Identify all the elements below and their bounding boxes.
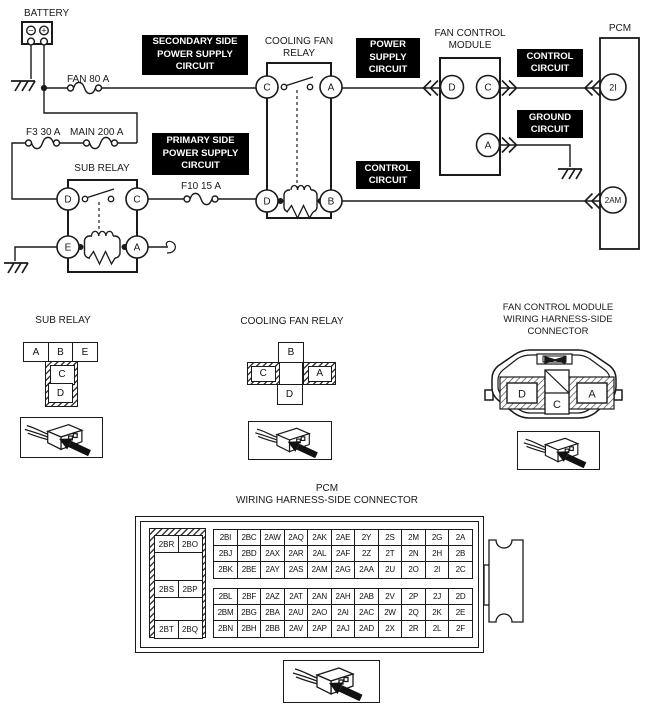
pcm-pin-cell: 2G (425, 529, 450, 547)
pcm-pin-cell: 2BB (260, 620, 285, 638)
cfr-connector-center (277, 362, 303, 386)
pcm-pin-cell: 2A (448, 529, 473, 547)
sub-relay-terminal-d: D (64, 195, 71, 206)
pcm-pin-grid-bottom: 2BL 2BF 2AZ 2AT 2AN 2AH 2AB 2V 2P 2J 2D … (213, 588, 473, 638)
sub-relay-connector-top-row: A B E (23, 342, 98, 362)
pcm-title: PCM (609, 23, 631, 34)
cooling-fan-relay-title: COOLING FAN RELAY (249, 36, 349, 60)
pcm-pin-cell: 2AP (307, 620, 332, 638)
pcm-pin-row: 2BI 2BC 2AW 2AQ 2AK 2AE 2Y 2S 2M 2G 2A (213, 529, 473, 547)
pcm-pin-cell: 2BD (237, 545, 262, 563)
fcm-connector-title: FAN CONTROL MODULE WIRING HARNESS-SIDE C… (478, 302, 638, 338)
pcm-pin-cell: 2AX (260, 545, 285, 563)
pcm-pin-cell: 2BN (213, 620, 238, 638)
pcm-pin-cell: 2J (425, 588, 450, 606)
pcm-side-pair: 2BS 2BP (154, 580, 203, 599)
pcm-pin-cell: 2AN (307, 588, 332, 606)
sub-relay-connector-body: C D (45, 361, 78, 407)
connector-photo-icon (518, 432, 598, 468)
pcm-pin-cell: 2C (448, 561, 473, 579)
pcm-pin-cell: 2AW (260, 529, 285, 547)
connector-photo-icon (284, 661, 378, 701)
sub-relay-pin-e: E (72, 342, 98, 362)
pcm-pin-cell: 2BM (213, 604, 238, 622)
pcm-pin-cell: 2T (378, 545, 403, 563)
pcm-box (600, 38, 639, 249)
pcm-pin-cell: 2H (425, 545, 450, 563)
connector-photo-icon (249, 422, 330, 458)
pcm-pin-cell: 2W (378, 604, 403, 622)
pcm-pin-cell: 2L (425, 620, 450, 638)
fcm-connector-photo (517, 431, 600, 470)
cfr-connector-left-body: C (247, 362, 280, 386)
pcm-pin-cell: 2AQ (284, 529, 309, 547)
pcm-pin-cell: 2AJ (331, 620, 356, 638)
fcm-connector-pin-c: C (553, 399, 561, 411)
pcm-pin-cell: 2BP (178, 580, 203, 599)
pcm-pin-row: 2BK 2BE 2AY 2AS 2AM 2AG 2AA 2U 2O 2I 2C (213, 561, 473, 579)
pcm-pin-row: 2BL 2BF 2AZ 2AT 2AN 2AH 2AB 2V 2P 2J 2D (213, 588, 473, 606)
pcm-pin-cell: 2N (401, 545, 426, 563)
pcm-pin-cell: 2AC (354, 604, 379, 622)
pcm-pin-cell: 2AY (260, 561, 285, 579)
pcm-pin-cell: 2AH (331, 588, 356, 606)
fcm-terminal-c: C (484, 83, 491, 94)
pcm-terminal-2am: 2AM (605, 196, 622, 205)
fcm-connector-diagram: D C A (483, 344, 627, 430)
pcm-connector-photo (283, 660, 380, 703)
pcm-key-blank (154, 552, 203, 581)
cfr-connector-title: COOLING FAN RELAY (217, 316, 367, 328)
control-circuit-label-bottom: CONTROL CIRCUIT (356, 161, 420, 189)
pcm-connector-key-tab (483, 517, 528, 653)
fcm-connector-pin-a: A (588, 389, 596, 401)
pcm-pin-cell: 2K (425, 604, 450, 622)
pcm-pin-cell: 2BA (260, 604, 285, 622)
pcm-pin-cell: 2R (401, 620, 426, 638)
pcm-pin-cell: 2AE (331, 529, 356, 547)
cfr-pin-c: C (251, 366, 276, 382)
sub-relay-pin-a: A (23, 342, 49, 362)
cfr-terminal-b: B (328, 197, 335, 208)
pcm-pin-cell: 2AO (307, 604, 332, 622)
pcm-pin-cell: 2AR (284, 545, 309, 563)
pcm-pin-cell: 2BT (154, 620, 179, 639)
pcm-pin-cell: 2M (401, 529, 426, 547)
pcm-pin-cell: 2BG (237, 604, 262, 622)
sub-relay-connector-photo (20, 417, 103, 458)
pcm-pin-cell: 2Y (354, 529, 379, 547)
fcm-connector-pin-d: D (518, 389, 526, 401)
pcm-pin-cell: 2AI (331, 604, 356, 622)
pcm-pin-cell: 2AV (284, 620, 309, 638)
secondary-side-power-supply-label: SECONDARY SIDE POWER SUPPLY CIRCUIT (142, 35, 248, 75)
pcm-pin-cell: 2P (401, 588, 426, 606)
sub-relay-terminal-c: C (133, 195, 140, 206)
pcm-pin-cell: 2BF (237, 588, 262, 606)
pcm-pin-cell: 2S (378, 529, 403, 547)
ground-icon (11, 81, 35, 91)
pcm-pin-cell: 2BE (237, 561, 262, 579)
cfr-terminal-a: A (328, 83, 335, 94)
wiring-diagram-page: BATTERY − + FAN 80 A F3 30 A MAIN 200 A … (0, 0, 653, 713)
sub-relay-pin-c: C (50, 365, 75, 385)
pcm-pin-cell: 2AF (331, 545, 356, 563)
cfr-connector-right-body: A (303, 362, 336, 386)
terminal-circles (57, 74, 626, 258)
pcm-pin-row: 2BJ 2BD 2AX 2AR 2AL 2AF 2Z 2T 2N 2H 2B (213, 545, 473, 563)
pcm-pin-cell: 2BQ (178, 620, 203, 639)
pcm-side-pair: 2BT 2BQ (154, 620, 203, 639)
pcm-pin-cell: 2AT (284, 588, 309, 606)
pcm-pin-cell: 2BI (213, 529, 238, 547)
cfr-terminal-d: D (263, 197, 270, 208)
battery-title: BATTERY (24, 8, 70, 19)
sub-relay-title: SUB RELAY (74, 163, 130, 174)
pcm-pin-cell: 2AG (331, 561, 356, 579)
sub-relay-terminal-a: A (134, 243, 141, 254)
sub-relay-connector-title: SUB RELAY (13, 315, 113, 327)
pcm-pin-cell: 2X (378, 620, 403, 638)
cfr-terminal-c: C (263, 83, 270, 94)
pcm-pin-cell: 2AD (354, 620, 379, 638)
cfr-pin-b: B (278, 342, 304, 363)
pcm-pin-cell: 2I (425, 561, 450, 579)
pcm-connector-diagram: 2BR 2BO 2BS 2BP 2BT 2BQ 2BI 2BC 2AW 2AQ … (135, 516, 484, 653)
sub-relay-pin-d: D (48, 383, 73, 403)
primary-side-power-supply-label: PRIMARY SIDE POWER SUPPLY CIRCUIT (152, 133, 249, 175)
pcm-pin-cell: 2AL (307, 545, 332, 563)
pcm-side-pair: 2BR 2BO (154, 535, 203, 554)
battery-minus-symbol: − (28, 26, 33, 36)
ground-icon (4, 263, 28, 273)
pcm-pin-cell: 2BC (237, 529, 262, 547)
pcm-pin-row: 2BN 2BH 2BB 2AV 2AP 2AJ 2AD 2X 2R 2L 2F (213, 620, 473, 638)
pcm-pin-cell: 2V (378, 588, 403, 606)
fuse-f10-label: F10 15 A (181, 181, 221, 192)
ground-circuit-label: GROUND CIRCUIT (517, 110, 583, 138)
battery-plus-symbol: + (41, 26, 46, 36)
pcm-key-blank (154, 597, 203, 621)
fuse-main-label: MAIN 200 A (70, 127, 124, 138)
cfr-pin-a: A (308, 366, 333, 382)
fan-control-module-title: FAN CONTROL MODULE (420, 28, 520, 52)
pcm-pin-cell: 2AA (354, 561, 379, 579)
pcm-pin-cell: 2BR (154, 535, 179, 554)
pcm-pin-cell: 2AZ (260, 588, 285, 606)
pcm-pin-cell: 2AK (307, 529, 332, 547)
connector-photo-icon (21, 418, 101, 456)
pcm-pin-cell: 2AU (284, 604, 309, 622)
pcm-pin-cell: 2Q (401, 604, 426, 622)
pcm-connector-title: PCM WIRING HARNESS-SIDE CONNECTOR (214, 483, 440, 507)
fcm-terminal-a: A (485, 141, 492, 152)
sub-relay-terminal-e: E (65, 243, 72, 254)
fuse-fan-label: FAN 80 A (67, 74, 110, 85)
fcm-terminal-d: D (448, 83, 455, 94)
pcm-pin-cell: 2AM (307, 561, 332, 579)
pcm-pin-cell: 2Z (354, 545, 379, 563)
pcm-pin-cell: 2AS (284, 561, 309, 579)
power-supply-circuit-label: POWER SUPPLY CIRCUIT (356, 38, 420, 78)
pcm-pin-cell: 2E (448, 604, 473, 622)
fuse-f3-label: F3 30 A (26, 127, 61, 138)
pcm-pin-row: 2BM 2BG 2BA 2AU 2AO 2AI 2AC 2W 2Q 2K 2E (213, 604, 473, 622)
pcm-pin-cell: 2BJ (213, 545, 238, 563)
pcm-pin-cell: 2BL (213, 588, 238, 606)
pcm-pin-grid-top: 2BI 2BC 2AW 2AQ 2AK 2AE 2Y 2S 2M 2G 2A 2… (213, 529, 473, 579)
cfr-pin-d: D (277, 384, 303, 405)
pcm-pin-cell: 2AB (354, 588, 379, 606)
pcm-pin-cell: 2B (448, 545, 473, 563)
ground-icon (558, 169, 582, 179)
pcm-pin-cell: 2U (378, 561, 403, 579)
cfr-connector-photo (248, 421, 332, 460)
pcm-connector-key-block: 2BR 2BO 2BS 2BP 2BT 2BQ (149, 528, 206, 638)
pcm-pin-cell: 2D (448, 588, 473, 606)
pcm-pin-cell: 2BH (237, 620, 262, 638)
sub-relay-pin-b: B (48, 342, 74, 362)
pcm-pin-cell: 2BK (213, 561, 238, 579)
pcm-pin-cell: 2O (401, 561, 426, 579)
pcm-pin-cell: 2F (448, 620, 473, 638)
pcm-pin-cell: 2BS (154, 580, 179, 599)
pcm-pin-cell: 2BO (178, 535, 203, 554)
pcm-terminal-2i: 2I (609, 83, 617, 93)
control-circuit-label-top: CONTROL CIRCUIT (517, 49, 583, 77)
